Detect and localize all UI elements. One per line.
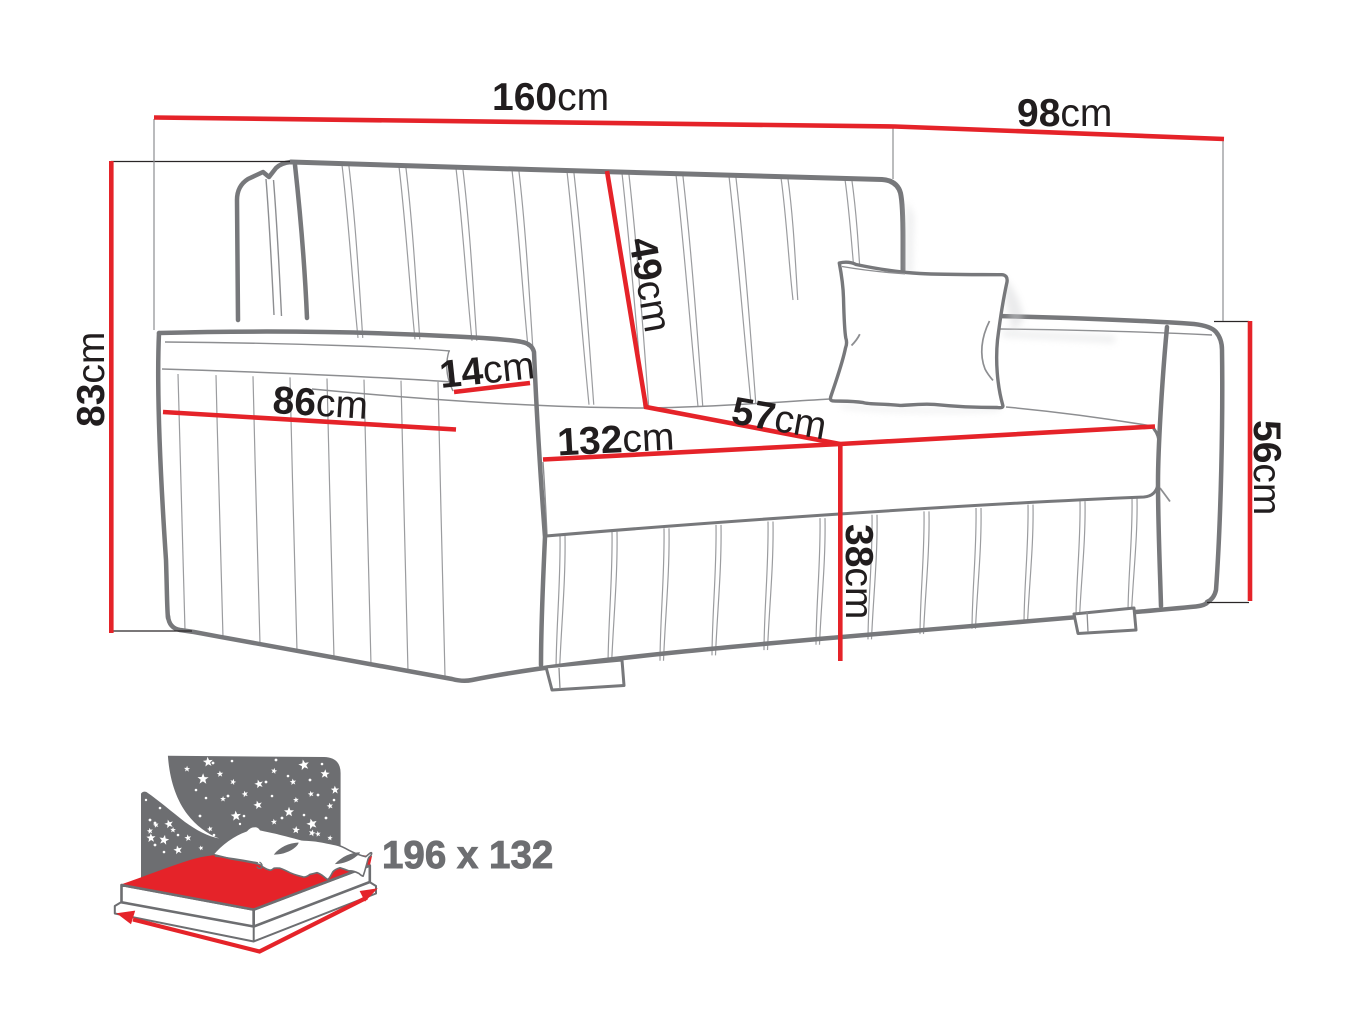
svg-text:38cm: 38cm bbox=[837, 524, 880, 619]
svg-text:56cm: 56cm bbox=[1245, 420, 1288, 515]
svg-text:132cm: 132cm bbox=[556, 415, 675, 464]
svg-text:196 x 132: 196 x 132 bbox=[382, 834, 553, 877]
svg-text:98cm: 98cm bbox=[1017, 92, 1112, 135]
svg-text:160cm: 160cm bbox=[492, 76, 609, 119]
svg-text:83cm: 83cm bbox=[70, 332, 113, 427]
svg-text:86cm: 86cm bbox=[271, 379, 369, 428]
